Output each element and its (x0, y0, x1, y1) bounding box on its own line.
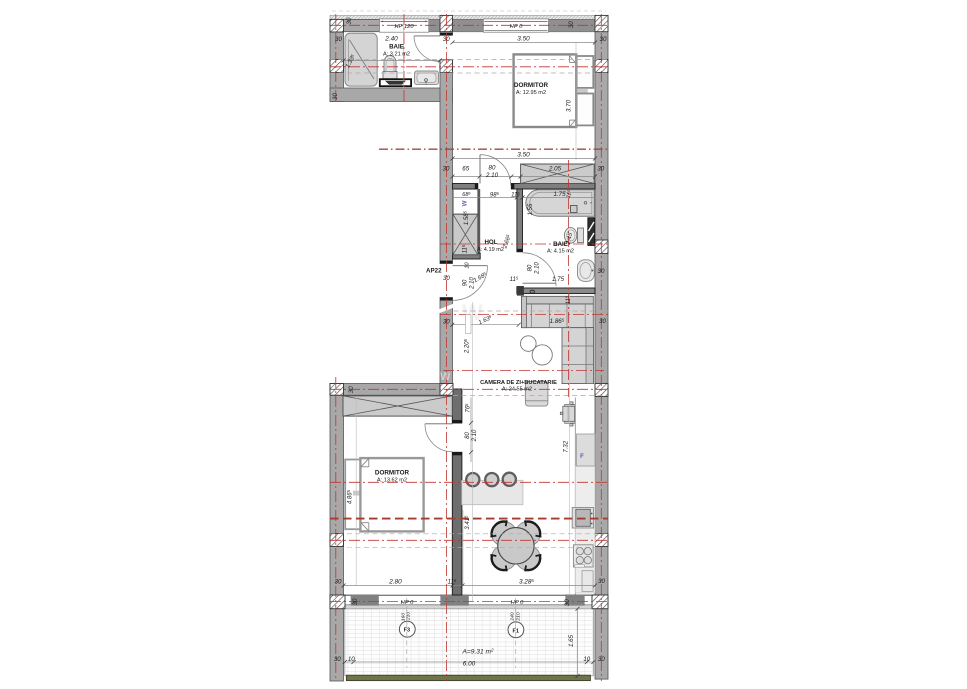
svg-text:3.50: 3.50 (517, 152, 530, 159)
svg-text:BAIE: BAIE (389, 44, 404, 51)
svg-text:3.41⁵: 3.41⁵ (464, 515, 471, 530)
svg-text:A: 4.15 m2: A: 4.15 m2 (547, 249, 574, 255)
svg-text:90: 90 (463, 279, 469, 286)
svg-text:W: W (440, 371, 451, 383)
svg-text:HP 0: HP 0 (401, 600, 414, 606)
svg-text:2.10: 2.10 (535, 262, 541, 275)
svg-text:80: 80 (489, 165, 496, 172)
svg-text:1.86⁵: 1.86⁵ (550, 318, 565, 325)
svg-text:1.55: 1.55 (528, 203, 534, 215)
svg-text:2.05: 2.05 (548, 166, 562, 173)
svg-text:A: 4.19 m2: A: 4.19 m2 (477, 247, 504, 253)
svg-text:30: 30 (568, 21, 575, 28)
svg-text:W: W (344, 542, 356, 556)
svg-text:240: 240 (510, 612, 516, 621)
svg-text:30: 30 (443, 166, 450, 173)
svg-text:W: W (462, 200, 469, 206)
svg-text:11⁵: 11⁵ (448, 579, 457, 586)
svg-text:30: 30 (443, 36, 450, 43)
svg-text:3.28⁵: 3.28⁵ (519, 579, 534, 586)
svg-text:98⁵: 98⁵ (490, 192, 500, 199)
svg-text:76⁵: 76⁵ (464, 403, 471, 413)
svg-text:30: 30 (598, 268, 605, 275)
svg-text:3.50: 3.50 (517, 36, 530, 43)
svg-text:2.80: 2.80 (388, 579, 402, 586)
svg-text:A: 12.95 m2: A: 12.95 m2 (516, 90, 546, 96)
svg-text:A: 24.55 m2: A: 24.55 m2 (502, 387, 532, 393)
svg-text:HP 120: HP 120 (394, 24, 414, 30)
svg-text:1.65: 1.65 (568, 634, 575, 647)
svg-text:A: 3.21 m2: A: 3.21 m2 (383, 52, 410, 58)
svg-text:30: 30 (600, 36, 607, 43)
svg-text:6.00: 6.00 (463, 661, 476, 668)
svg-text:7.32: 7.32 (563, 440, 569, 452)
svg-text:30: 30 (346, 17, 353, 24)
svg-text:11⁵: 11⁵ (511, 192, 520, 199)
svg-text:210: 210 (406, 612, 412, 621)
svg-text:1.75: 1.75 (552, 276, 565, 283)
svg-text:A=9.31 m2: A=9.31 m2 (462, 648, 494, 656)
svg-text:210: 210 (516, 612, 522, 621)
svg-text:30: 30 (334, 656, 341, 663)
svg-text:F: F (580, 454, 584, 460)
svg-text:80: 80 (465, 432, 471, 439)
svg-text:HOL: HOL (484, 239, 497, 246)
svg-text:30: 30 (335, 579, 342, 586)
svg-text:3.70: 3.70 (566, 99, 573, 112)
svg-text:30: 30 (564, 599, 571, 606)
svg-text:2.20⁵: 2.20⁵ (464, 338, 471, 354)
svg-text:30: 30 (597, 166, 604, 173)
svg-text:HP 0: HP 0 (511, 600, 524, 606)
svg-text:30: 30 (352, 598, 359, 605)
svg-text:11⁵: 11⁵ (462, 244, 469, 253)
svg-text:30: 30 (598, 656, 605, 663)
svg-text:11⁵: 11⁵ (565, 295, 572, 304)
svg-text:68⁵: 68⁵ (462, 191, 471, 198)
svg-text:10: 10 (583, 656, 590, 663)
svg-text:30: 30 (332, 93, 339, 100)
svg-text:4.86⁵: 4.86⁵ (347, 489, 354, 504)
svg-text:10: 10 (464, 262, 470, 269)
svg-text:1.75: 1.75 (553, 191, 566, 198)
svg-text:11⁵: 11⁵ (510, 276, 519, 283)
svg-text:DORMITOR: DORMITOR (375, 470, 410, 477)
svg-text:1.58⁵: 1.58⁵ (463, 210, 470, 225)
svg-text:DORMITOR: DORMITOR (514, 82, 549, 89)
svg-text:HP 0: HP 0 (510, 24, 523, 30)
svg-text:2.10: 2.10 (472, 429, 478, 442)
svg-text:AP22: AP22 (426, 268, 442, 275)
svg-text:30: 30 (335, 36, 342, 43)
svg-text:65: 65 (462, 166, 469, 173)
svg-text:2.10: 2.10 (485, 172, 499, 179)
svg-text:30: 30 (348, 386, 355, 393)
svg-text:A: 13.62 m2: A: 13.62 m2 (377, 478, 407, 484)
svg-text:30: 30 (443, 319, 450, 326)
svg-text:30: 30 (443, 275, 450, 282)
svg-text:10: 10 (348, 656, 355, 663)
svg-text:2.40: 2.40 (384, 36, 398, 43)
svg-text:CAMERA DE ZI+BUCATARIE: CAMERA DE ZI+BUCATARIE (480, 380, 557, 386)
svg-text:30: 30 (599, 318, 606, 325)
svg-text:80: 80 (528, 264, 534, 271)
svg-text:30: 30 (598, 578, 605, 585)
